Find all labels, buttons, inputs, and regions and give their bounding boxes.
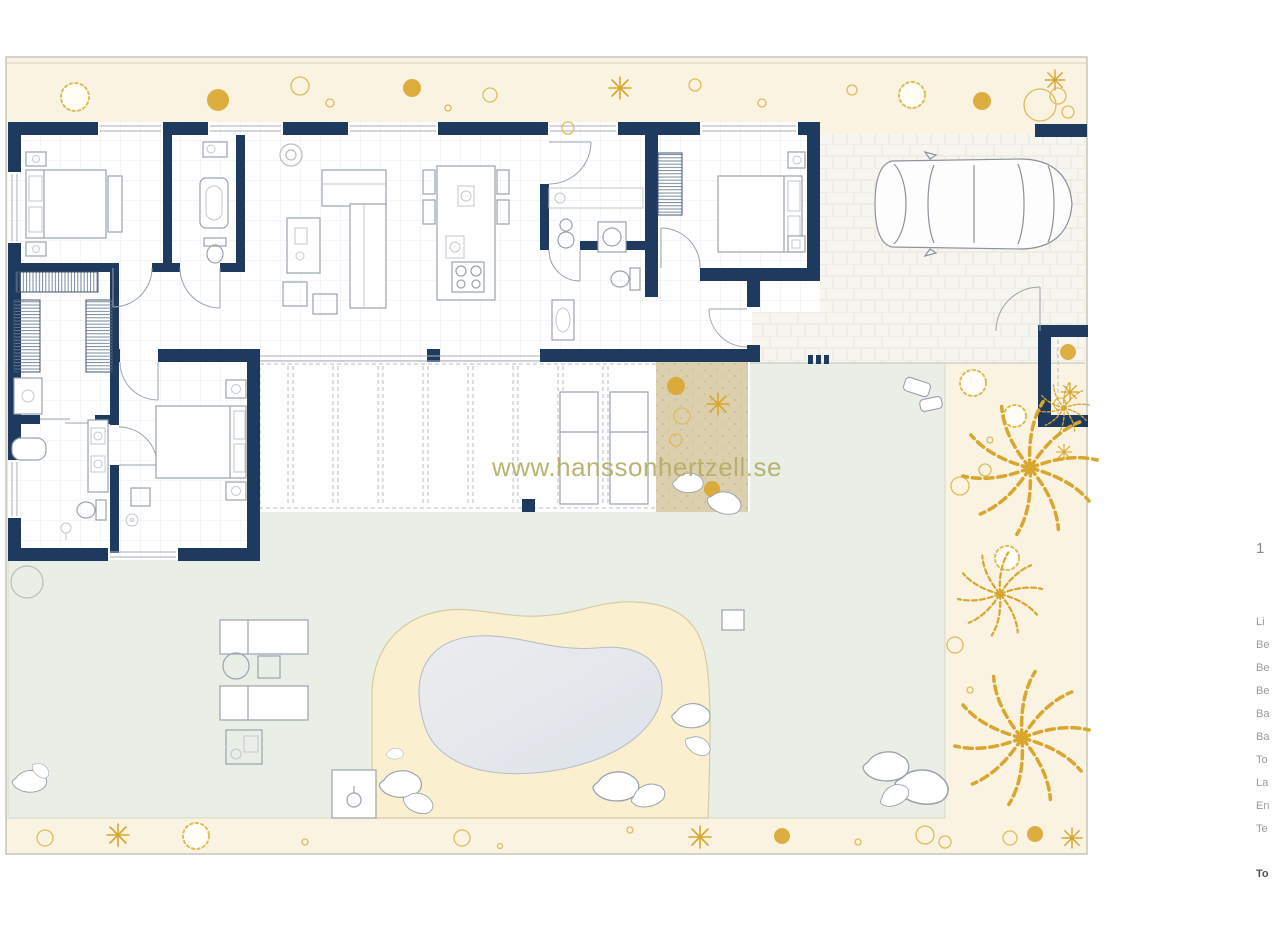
pool — [372, 602, 714, 818]
legend-item: Ba — [1256, 708, 1269, 720]
legend-item: Be — [1256, 662, 1269, 674]
watermark: www.hanssonhertzell.se — [492, 452, 782, 483]
legend-item: La — [1256, 777, 1268, 789]
gravel-patch — [656, 362, 748, 518]
floor-plan-page: www.hanssonhertzell.se 1 Li Be Be Be Ba … — [0, 0, 1280, 933]
legend-item: Be — [1256, 639, 1269, 651]
legend-item: Li — [1256, 616, 1265, 628]
legend-item: Te — [1256, 823, 1268, 835]
entrance-steps — [808, 355, 829, 364]
legend-item: Ba — [1256, 731, 1269, 743]
car — [875, 152, 1072, 256]
wardrobe — [658, 153, 682, 215]
legend-item: En — [1256, 800, 1269, 812]
legend-total: To — [1256, 868, 1269, 880]
outdoor-shower — [332, 770, 376, 818]
legend-item: Be — [1256, 685, 1269, 697]
legend-item: To — [1256, 754, 1268, 766]
legend-fragment-top: 1 — [1256, 540, 1264, 557]
